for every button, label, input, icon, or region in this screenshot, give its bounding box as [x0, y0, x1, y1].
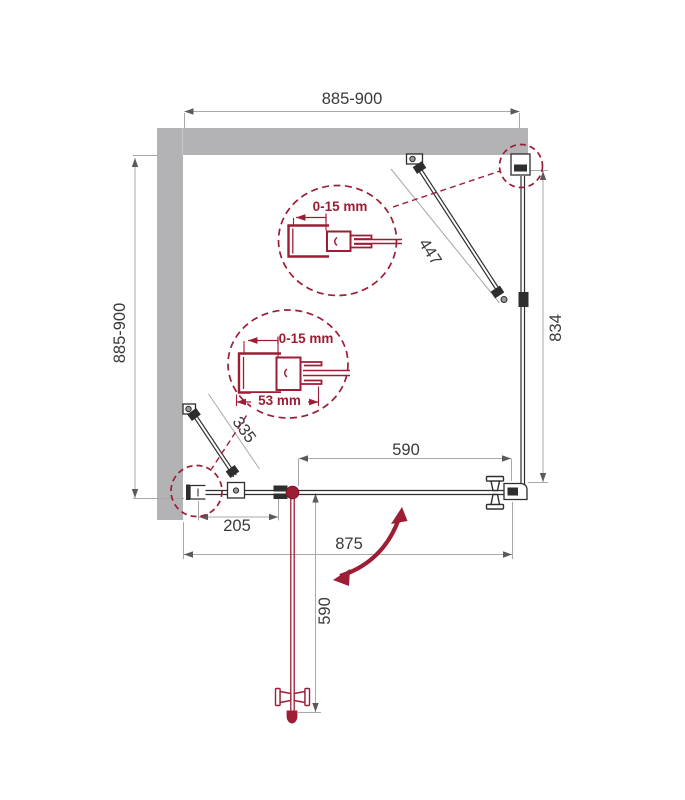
support-bar-335 — [183, 404, 245, 498]
wall-top — [157, 128, 528, 155]
bracket-screw — [410, 156, 415, 161]
leader-support-bar-335 — [209, 394, 260, 469]
drawing-canvas — [0, 0, 685, 800]
door-handle — [487, 477, 504, 510]
callout-leader-upper — [393, 171, 500, 207]
door-swing-arrow — [333, 507, 408, 586]
door-pivot-clamp — [274, 486, 288, 500]
glass-panels — [205, 176, 525, 495]
door-open-handle — [276, 689, 310, 706]
wall-profile-top-right — [511, 154, 530, 175]
profile-section-lower — [237, 337, 351, 407]
corner-connector — [504, 484, 527, 500]
support-bar-447 — [407, 154, 529, 307]
wall-profile-bottom-left — [186, 485, 206, 501]
door-pivot — [286, 486, 299, 499]
clamp-screw — [233, 488, 238, 493]
detail-circle-upper — [279, 186, 397, 296]
drawing-page: 885-900 885-900 834 447 335 590 205 875 … — [0, 0, 685, 800]
walls — [157, 128, 528, 520]
bracket-screw — [186, 406, 191, 411]
door-edge-cap — [287, 711, 298, 724]
wall-left — [157, 128, 183, 520]
door-open — [276, 486, 310, 723]
clamp-screw — [501, 297, 507, 303]
profile-section-upper — [289, 214, 403, 257]
bar-glass-clamp — [519, 292, 529, 307]
